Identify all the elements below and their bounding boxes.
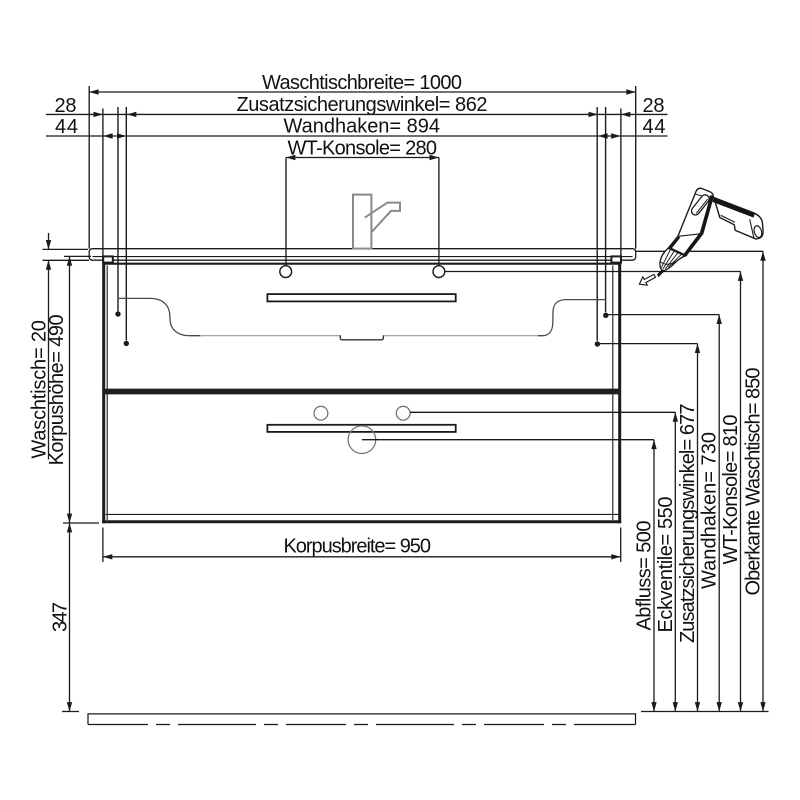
- svg-text:Korpushöhe= 490: Korpushöhe= 490: [46, 314, 68, 465]
- svg-text:28: 28: [55, 95, 77, 117]
- svg-text:WT-Konsole= 280: WT-Konsole= 280: [288, 138, 438, 160]
- svg-text:Oberkante Waschtisch= 850: Oberkante Waschtisch= 850: [743, 368, 765, 596]
- svg-text:Zusatzsicherungswinkel= 862: Zusatzsicherungswinkel= 862: [237, 94, 488, 116]
- svg-text:Eckventile= 550: Eckventile= 550: [655, 497, 677, 633]
- svg-text:28: 28: [643, 95, 665, 117]
- svg-text:44: 44: [643, 116, 666, 138]
- svg-text:Abfluss= 500: Abfluss= 500: [634, 521, 656, 631]
- svg-text:Zusatzsicherungswinkel= 677: Zusatzsicherungswinkel= 677: [677, 404, 699, 644]
- svg-text:Waschtischbreite= 1000: Waschtischbreite= 1000: [262, 72, 462, 94]
- svg-text:347: 347: [50, 602, 72, 632]
- svg-text:Korpusbreite= 950: Korpusbreite= 950: [284, 536, 432, 558]
- svg-text:WT-Konsole= 810: WT-Konsole= 810: [720, 415, 742, 565]
- svg-text:44: 44: [55, 116, 78, 138]
- svg-text:Wandhaken= 894: Wandhaken= 894: [284, 116, 441, 138]
- svg-text:Wandhaken= 730: Wandhaken= 730: [699, 432, 721, 589]
